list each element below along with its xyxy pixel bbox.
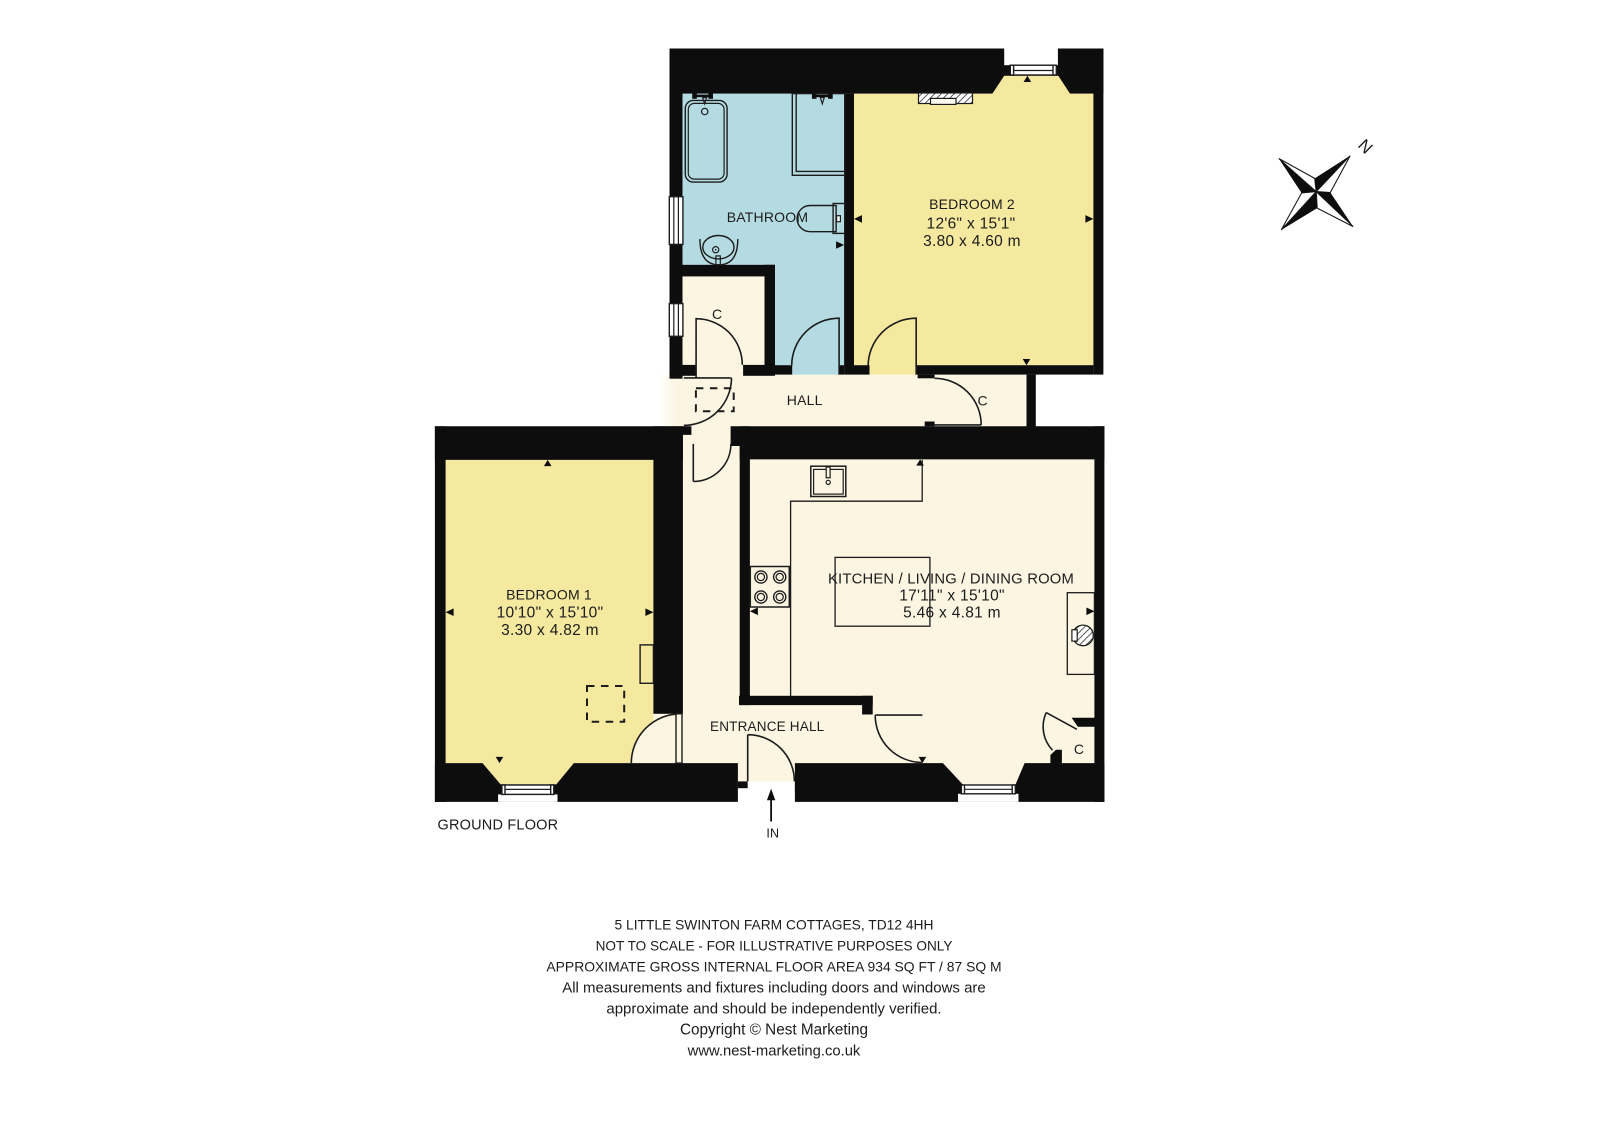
svg-text:BEDROOM 1: BEDROOM 1	[506, 587, 592, 603]
svg-text:All measurements and fixtures: All measurements and fixtures including …	[562, 980, 986, 997]
svg-text:C: C	[712, 306, 722, 322]
svg-text:GROUND FLOOR: GROUND FLOOR	[438, 818, 559, 834]
svg-text:3.30 x 4.82 m: 3.30 x 4.82 m	[501, 622, 599, 639]
svg-text:BEDROOM 2: BEDROOM 2	[929, 196, 1015, 212]
svg-text:N: N	[1354, 136, 1376, 158]
svg-text:IN: IN	[766, 826, 779, 840]
svg-text:17'11" x 15'10": 17'11" x 15'10"	[899, 588, 1005, 605]
svg-text:3.80 x 4.60 m: 3.80 x 4.60 m	[923, 233, 1021, 250]
svg-text:ENTRANCE HALL: ENTRANCE HALL	[710, 719, 825, 734]
svg-text:NOT TO SCALE - FOR ILLUSTRATIV: NOT TO SCALE - FOR ILLUSTRATIVE PURPOSES…	[596, 939, 953, 954]
svg-text:APPROXIMATE GROSS INTERNAL FLO: APPROXIMATE GROSS INTERNAL FLOOR AREA 93…	[546, 959, 1001, 975]
svg-text:10'10" x 15'10": 10'10" x 15'10"	[497, 605, 604, 622]
svg-text:12'6" x 15'1": 12'6" x 15'1"	[927, 216, 1016, 233]
svg-text:Copyright © Nest Marketing: Copyright © Nest Marketing	[680, 1022, 868, 1039]
svg-text:BATHROOM: BATHROOM	[727, 209, 808, 225]
svg-text:HALL: HALL	[787, 392, 823, 408]
svg-text:5.46 x 4.81 m: 5.46 x 4.81 m	[903, 605, 1001, 622]
svg-text:C: C	[1074, 741, 1084, 757]
svg-text:C: C	[977, 393, 987, 409]
svg-text:KITCHEN / LIVING / DINING ROOM: KITCHEN / LIVING / DINING ROOM	[828, 572, 1074, 588]
svg-text:www.nest-marketing.co.uk: www.nest-marketing.co.uk	[687, 1044, 861, 1060]
svg-text:5 LITTLE SWINTON FARM COTTAGES: 5 LITTLE SWINTON FARM COTTAGES, TD12 4HH	[615, 918, 934, 933]
svg-text:approximate and should be inde: approximate and should be independently …	[606, 1001, 941, 1018]
